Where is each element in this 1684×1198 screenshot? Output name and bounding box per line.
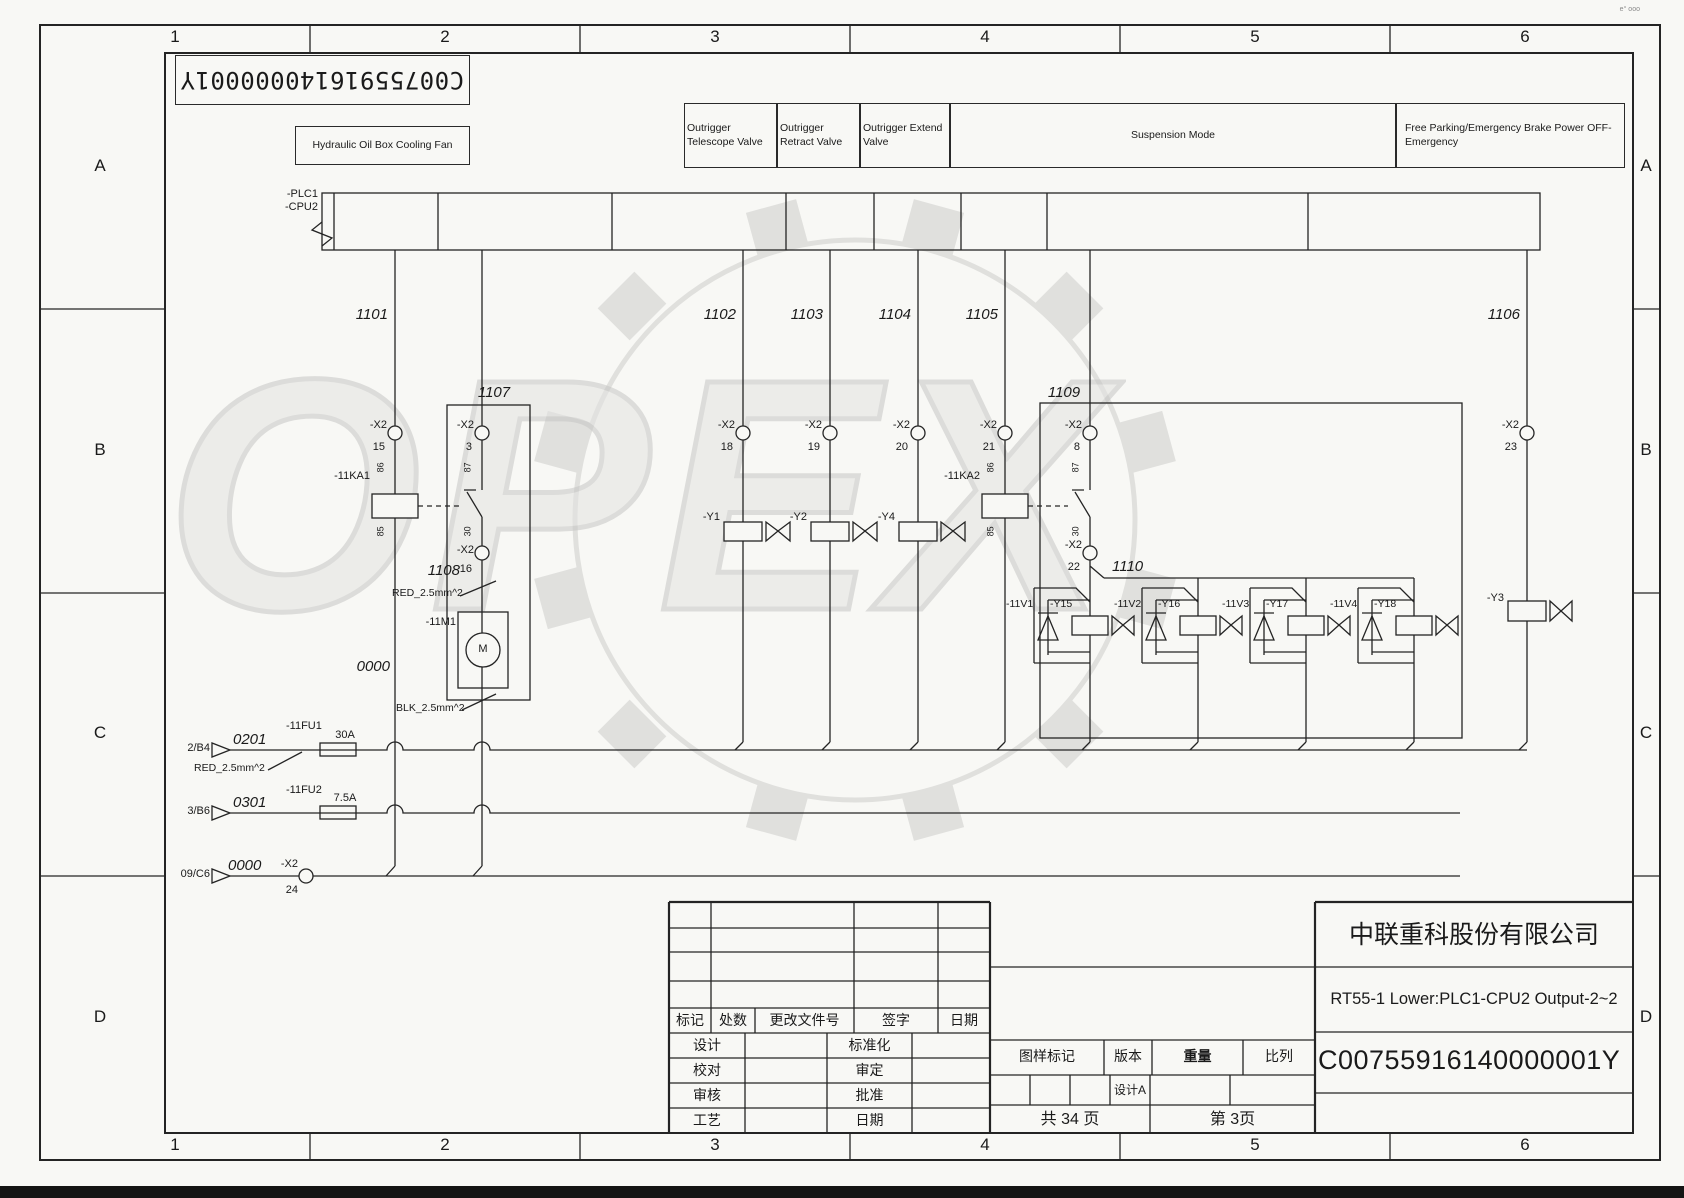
vertical-wires bbox=[386, 250, 1527, 876]
free-parking-text: Free Parking/Emergency Brake Power OFF-E… bbox=[1405, 122, 1616, 148]
terminal-x2-20-ref: -X2 bbox=[874, 419, 910, 432]
plc-block bbox=[312, 193, 1540, 250]
motor-m-symbol: M bbox=[472, 643, 494, 656]
diode-v1-ref: -11V1 bbox=[1006, 598, 1048, 611]
signoff-standardize: 标准化 bbox=[827, 1037, 912, 1054]
terminal-x2-23-ref: -X2 bbox=[1483, 419, 1519, 432]
diode-v3-ref: -11V3 bbox=[1222, 598, 1264, 611]
wire-spec-blk: BLK_2.5mm^2 bbox=[396, 702, 486, 715]
fuse-fu2-rating: 7.5A bbox=[328, 792, 362, 805]
ka1-pin-85: 85 bbox=[376, 521, 387, 541]
ka2-pin-86: 86 bbox=[986, 457, 997, 477]
zone-col-2-bottom: 2 bbox=[425, 1135, 465, 1155]
terminal-x2-8-pin: 8 bbox=[1056, 441, 1080, 454]
contact1-pin-87: 87 bbox=[463, 457, 474, 477]
zone-row-a-right: A bbox=[1626, 156, 1666, 176]
outrigger-retract-text: Outrigger Retract Valve bbox=[780, 122, 857, 148]
rev-header-count: 处数 bbox=[711, 1012, 755, 1029]
barcode-box: C00755916140000001Y bbox=[175, 55, 470, 105]
zone-row-d-right: D bbox=[1626, 1007, 1666, 1027]
version-value: 设计A bbox=[1106, 1083, 1154, 1097]
signoff-date: 日期 bbox=[827, 1112, 912, 1129]
contact2-pin-30: 30 bbox=[1071, 521, 1082, 541]
box-1109 bbox=[1040, 403, 1462, 738]
cpu2-text: -CPU2 bbox=[285, 201, 318, 213]
terminal-x2-15-ref: -X2 bbox=[351, 419, 387, 432]
net-0201: 0201 bbox=[233, 731, 279, 749]
signoff-process: 工艺 bbox=[669, 1112, 745, 1129]
net-1107: 1107 bbox=[464, 384, 524, 402]
stamp-header-version: 版本 bbox=[1104, 1048, 1152, 1065]
outrigger-extend-text: Outrigger Extend Valve bbox=[863, 122, 947, 148]
valve-y4-ref: -Y4 bbox=[855, 511, 895, 524]
signoff-check: 校对 bbox=[669, 1062, 745, 1079]
terminal-x2-15-pin: 15 bbox=[361, 441, 385, 454]
fuse-fu2-ref: -11FU2 bbox=[286, 784, 332, 797]
ka2-pin-85: 85 bbox=[986, 521, 997, 541]
terminal-x2-16-ref: -X2 bbox=[438, 544, 474, 557]
zone-row-d-left: D bbox=[80, 1007, 120, 1027]
valve-y18-ref: -Y18 bbox=[1374, 598, 1414, 611]
zone-row-b-left: B bbox=[80, 440, 120, 460]
outrigger-telescope-text: Outrigger Telescope Valve bbox=[687, 122, 774, 148]
page-current: 第 3页 bbox=[1150, 1110, 1315, 1129]
contact2-pin-87: 87 bbox=[1071, 457, 1082, 477]
source-ref-3b6: 3/B6 bbox=[170, 805, 210, 818]
terminal-x2-18-pin: 18 bbox=[709, 441, 733, 454]
terminal-x2-24-pin: 24 bbox=[274, 884, 298, 897]
signoff-examine: 审定 bbox=[827, 1062, 912, 1079]
label-suspension-mode: Suspension Mode bbox=[950, 103, 1396, 168]
wire-spec-red: RED_2.5mm^2 bbox=[194, 762, 284, 775]
fuse-fu1-rating: 30A bbox=[328, 729, 362, 742]
zone-col-4-top: 4 bbox=[965, 27, 1005, 47]
terminal-x2-19-pin: 19 bbox=[796, 441, 820, 454]
cooling-fan-text: Hydraulic Oil Box Cooling Fan bbox=[312, 139, 452, 152]
motor-ref: -11M1 bbox=[406, 616, 456, 629]
label-outrigger-telescope: Outrigger Telescope Valve bbox=[684, 103, 777, 168]
terminal-x2-21-ref: -X2 bbox=[961, 419, 997, 432]
valve-y3-ref: -Y3 bbox=[1462, 592, 1504, 605]
terminal-x2-18-ref: -X2 bbox=[699, 419, 735, 432]
net-0000-rail: 0000 bbox=[228, 857, 262, 875]
red-wire-leader2 bbox=[460, 581, 496, 596]
scan-edge-strip bbox=[0, 1186, 1684, 1198]
label-outrigger-retract: Outrigger Retract Valve bbox=[777, 103, 860, 168]
terminal-x2-16-pin: 16 bbox=[448, 563, 472, 576]
terminal-x2-24-ref: -X2 bbox=[262, 858, 298, 871]
zone-col-3-bottom: 3 bbox=[695, 1135, 735, 1155]
contact1-pin-30: 30 bbox=[463, 521, 474, 541]
relay-ka1-coil bbox=[372, 494, 418, 518]
terminal-x2-3-ref: -X2 bbox=[438, 419, 474, 432]
net-1104: 1104 bbox=[851, 306, 911, 324]
terminal-x2-19-ref: -X2 bbox=[786, 419, 822, 432]
zone-row-a-left: A bbox=[80, 156, 120, 176]
company-name: 中联重科股份有限公司 bbox=[1315, 920, 1633, 950]
source-ref-2b4: 2/B4 bbox=[170, 742, 210, 755]
fuse-fu1-ref: -11FU1 bbox=[286, 720, 332, 733]
terminal-x2-20-pin: 20 bbox=[884, 441, 908, 454]
label-cooling-fan: Hydraulic Oil Box Cooling Fan bbox=[295, 126, 470, 165]
relay-ka1-ref: -11KA1 bbox=[314, 470, 370, 483]
corner-mark: e° ooo bbox=[1540, 6, 1640, 14]
schematic-sheet: OPEX bbox=[0, 0, 1684, 1198]
zone-col-3-top: 3 bbox=[695, 27, 735, 47]
valve-y17-ref: -Y17 bbox=[1266, 598, 1306, 611]
zone-row-b-right: B bbox=[1626, 440, 1666, 460]
rev-header-mark: 标记 bbox=[669, 1012, 711, 1029]
rev-header-sign: 签字 bbox=[854, 1012, 938, 1029]
zone-col-6-top: 6 bbox=[1505, 27, 1545, 47]
suspension-mode-text: Suspension Mode bbox=[1131, 129, 1215, 142]
relay-ka2-coil bbox=[982, 494, 1028, 518]
stamp-header-mark: 图样标记 bbox=[990, 1048, 1104, 1065]
zone-col-4-bottom: 4 bbox=[965, 1135, 1005, 1155]
function-boxes bbox=[447, 403, 1462, 738]
zone-col-5-top: 5 bbox=[1235, 27, 1275, 47]
net-0000-ka1: 0000 bbox=[344, 658, 390, 676]
net-1102: 1102 bbox=[676, 306, 736, 324]
valve-y1-ref: -Y1 bbox=[680, 511, 720, 524]
terminal-x2-8-ref: -X2 bbox=[1046, 419, 1082, 432]
signoff-approve: 批准 bbox=[827, 1087, 912, 1104]
valve-y16-ref: -Y16 bbox=[1158, 598, 1198, 611]
source-ref-09c6: 09/C6 bbox=[164, 868, 210, 881]
stamp-header-weight: 重量 bbox=[1152, 1048, 1243, 1065]
label-free-parking: Free Parking/Emergency Brake Power OFF-E… bbox=[1396, 103, 1625, 168]
barcode-text: C00755916140000001Y bbox=[180, 65, 464, 95]
label-outrigger-extend: Outrigger Extend Valve bbox=[860, 103, 950, 168]
rev-header-docno: 更改文件号 bbox=[755, 1012, 854, 1029]
diode-v4-ref: -11V4 bbox=[1330, 598, 1372, 611]
relay-symbols bbox=[372, 494, 1068, 518]
net-1106: 1106 bbox=[1460, 306, 1520, 324]
net-1103: 1103 bbox=[763, 306, 823, 324]
valve-y2-ref: -Y2 bbox=[767, 511, 807, 524]
zone-col-1-top: 1 bbox=[155, 27, 195, 47]
terminal-x2-23-pin: 23 bbox=[1493, 441, 1517, 454]
net-1101: 1101 bbox=[328, 306, 388, 324]
zone-row-c-right: C bbox=[1626, 723, 1666, 743]
doc-number: C00755916140000001Y bbox=[1318, 1044, 1630, 1076]
pages-total: 共 34 页 bbox=[990, 1110, 1150, 1129]
stamp-header-scale: 比列 bbox=[1243, 1048, 1315, 1065]
zone-col-6-bottom: 6 bbox=[1505, 1135, 1545, 1155]
net-0301: 0301 bbox=[233, 794, 279, 812]
signoff-design: 设计 bbox=[669, 1037, 745, 1054]
ka1-pin-86: 86 bbox=[376, 457, 387, 477]
plc1-text: -PLC1 bbox=[287, 188, 318, 200]
net-1109: 1109 bbox=[1036, 384, 1092, 402]
zone-col-1-bottom: 1 bbox=[155, 1135, 195, 1155]
zone-col-2-top: 2 bbox=[425, 27, 465, 47]
drawing-title: RT55-1 Lower:PLC1-CPU2 Output-2~2 bbox=[1315, 990, 1633, 1010]
wire-spec-red2: RED_2.5mm^2 bbox=[392, 587, 462, 600]
terminal-x2-22-pin: 22 bbox=[1056, 561, 1080, 574]
terminal-x2-21-pin: 21 bbox=[971, 441, 995, 454]
zone-col-5-bottom: 5 bbox=[1235, 1135, 1275, 1155]
zone-row-c-left: C bbox=[80, 723, 120, 743]
diode-v2-ref: -11V2 bbox=[1114, 598, 1156, 611]
valve-y15-ref: -Y15 bbox=[1050, 598, 1090, 611]
signoff-audit: 审核 bbox=[669, 1087, 745, 1104]
net-1105: 1105 bbox=[938, 306, 998, 324]
rev-header-date: 日期 bbox=[938, 1012, 990, 1029]
plc-ref-label: -PLC1 -CPU2 bbox=[246, 188, 318, 214]
net-1110: 1110 bbox=[1112, 558, 1162, 576]
terminal-x2-3-pin: 3 bbox=[448, 441, 472, 454]
relay-ka2-ref: -11KA2 bbox=[924, 470, 980, 483]
